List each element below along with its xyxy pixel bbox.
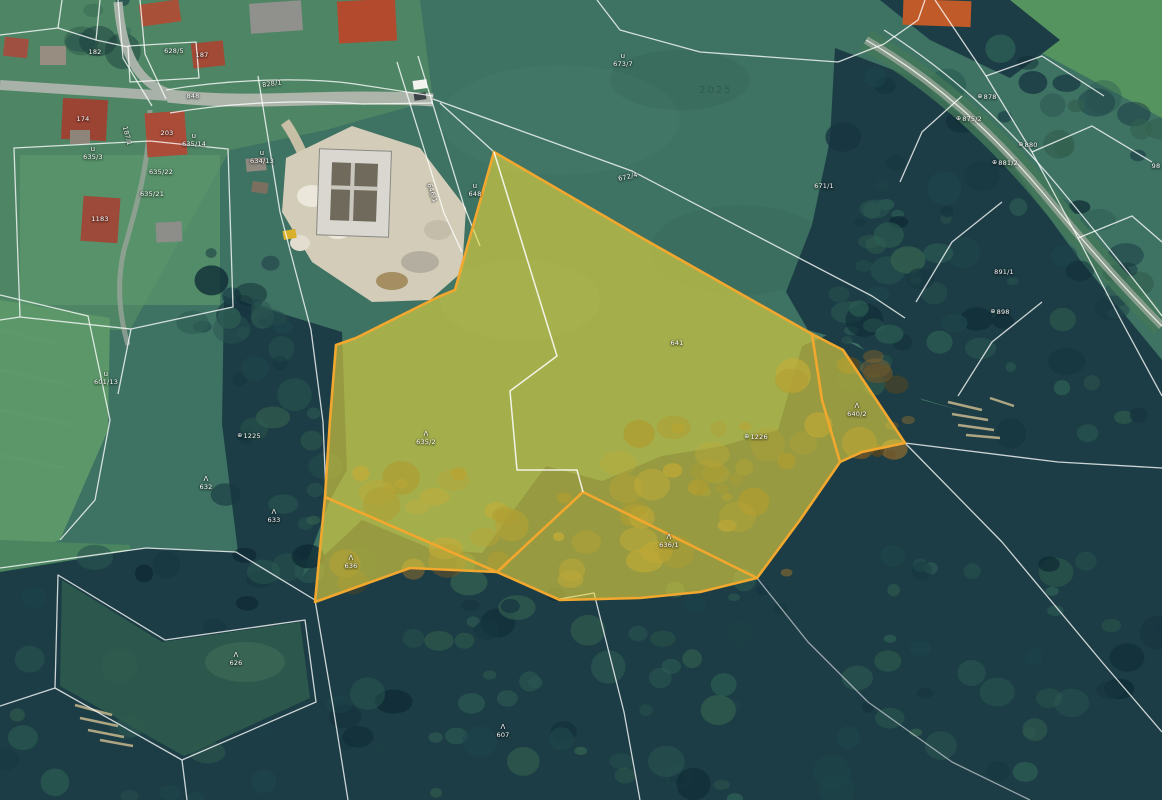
parcel-label-607: Λ607 [496,724,509,739]
parcel-label-628-5: 628/5 [164,48,184,55]
landuse-symbol-icon: u [192,133,197,140]
parcel-label-1225: ⊕1225 [237,433,261,440]
landuse-symbol-icon: u [260,150,265,157]
parcel-label-2025: 2025 [699,86,732,96]
survey-point-icon: ⊕ [237,433,242,439]
parcel-label-98: 98 [1152,163,1161,170]
tree-symbol-icon: Λ [500,724,505,731]
survey-point-icon: ⊕ [992,160,997,166]
parcel-label-635-21: 635/21 [140,191,164,198]
parcel-label-673-7: u673/7 [613,53,633,68]
parcel-label-187: 187 [195,52,208,59]
parcel-label-1226: ⊕1226 [744,434,768,441]
parcel-label-875-2: ⊕875/2 [956,116,982,123]
map-viewport[interactable]: 182628/5187828/1848174187/1203u635/14u63… [0,0,1162,800]
landuse-symbol-icon: u [473,183,478,190]
parcel-label-203: 203 [160,130,173,137]
tree-symbol-icon: Λ [423,431,428,438]
parcel-label-848: 848 [186,93,199,100]
parcel-label-880: ⊕880 [1018,142,1037,149]
parcel-label-1183: 1183 [91,216,108,223]
survey-point-icon: ⊕ [990,309,995,315]
parcel-label-187-1: 187/1 [121,126,132,147]
parcel-label-641: 641 [670,340,683,347]
parcel-label-646-1: 646/1 [426,183,438,204]
parcel-label-632: Λ632 [199,476,212,491]
parcel-label-636: Λ636 [344,555,357,570]
survey-point-icon: ⊕ [744,434,749,440]
survey-point-icon: ⊕ [1018,142,1023,148]
parcel-label-174: 174 [76,116,89,123]
tree-symbol-icon: Λ [666,534,671,541]
landuse-symbol-icon: u [104,371,109,378]
parcel-label-671-1: 671/1 [814,183,834,190]
parcel-label-636-1: Λ636/1 [659,534,679,549]
parcel-label-881-2: ⊕881/2 [992,160,1018,167]
tree-symbol-icon: Λ [854,403,859,410]
landuse-symbol-icon: u [91,146,96,153]
tree-symbol-icon: Λ [348,555,353,562]
parcel-label-640-2: Λ640/2 [847,403,867,418]
parcel-label-898: ⊕898 [990,309,1009,316]
parcel-labels-layer: 182628/5187828/1848174187/1203u635/14u63… [0,0,1162,800]
tree-symbol-icon: Λ [271,509,276,516]
survey-point-icon: ⊕ [956,116,961,122]
parcel-label-635-22: 635/22 [149,169,173,176]
parcel-label-891-1: 891/1 [994,269,1014,276]
parcel-label-634-13: u634/13 [250,150,274,165]
parcel-label-648: u648 [468,183,481,198]
parcel-label-828-1: 828/1 [262,79,282,88]
parcel-label-635-14: u635/14 [182,133,206,148]
parcel-label-182: 182 [88,49,101,56]
tree-symbol-icon: Λ [233,652,238,659]
parcel-label-633: Λ633 [267,509,280,524]
parcel-label-601-13: u601/13 [94,371,118,386]
landuse-symbol-icon: u [621,53,626,60]
parcel-label-635-3: u635/3 [83,146,103,161]
parcel-label-878: ⊕878 [977,94,996,101]
tree-symbol-icon: Λ [203,476,208,483]
parcel-label-672-4: 672/4 [618,172,639,183]
survey-point-icon: ⊕ [977,94,982,100]
parcel-label-626: Λ626 [229,652,242,667]
parcel-label-635-2: Λ635/2 [416,431,436,446]
